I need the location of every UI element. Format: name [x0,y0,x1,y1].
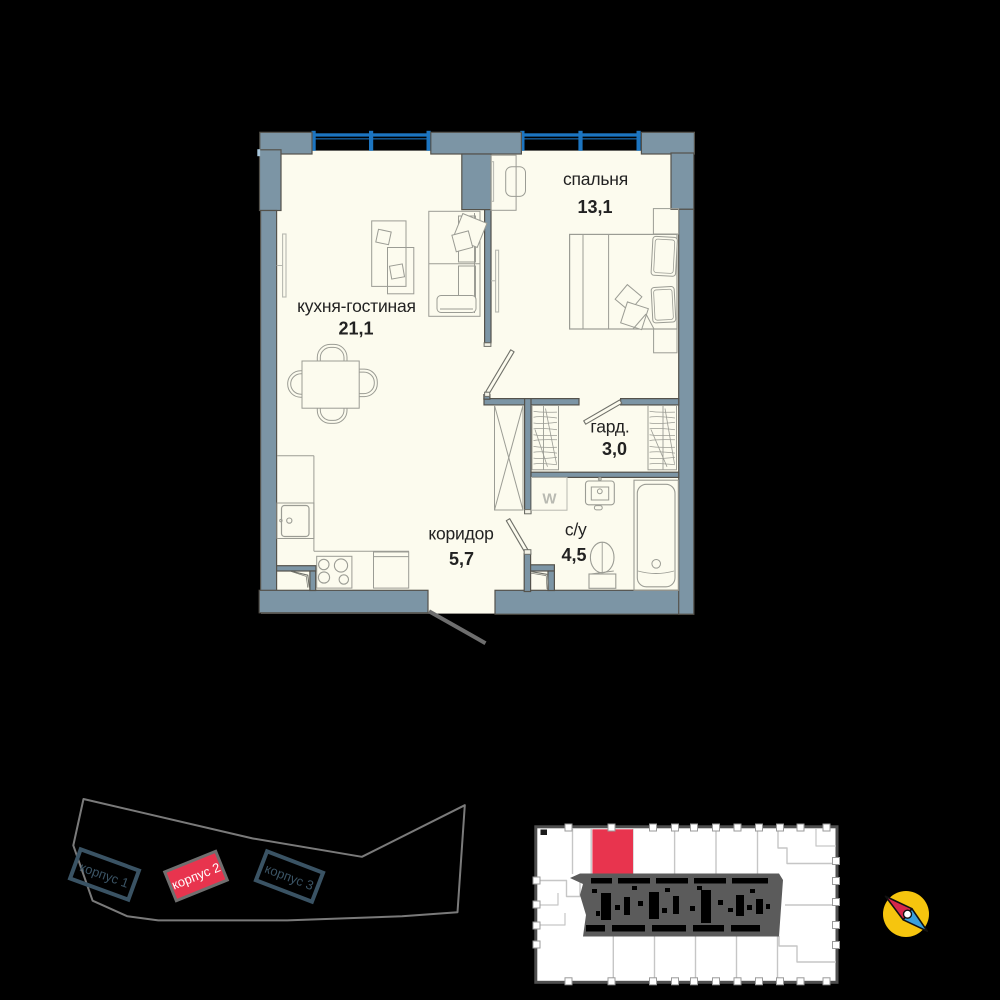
svg-text:13,1: 13,1 [577,197,612,217]
svg-text:4,5: 4,5 [561,545,586,565]
svg-text:W: W [542,491,557,508]
svg-text:кухня-гостиная: кухня-гостиная [297,296,416,316]
svg-text:21,1: 21,1 [338,319,373,339]
svg-text:5,7: 5,7 [449,549,474,569]
svg-text:гард.: гард. [590,417,629,437]
svg-text:с/у: с/у [565,520,587,540]
svg-text:коридор: коридор [428,524,493,544]
svg-text:спальня: спальня [563,169,628,189]
svg-text:3,0: 3,0 [602,439,627,459]
